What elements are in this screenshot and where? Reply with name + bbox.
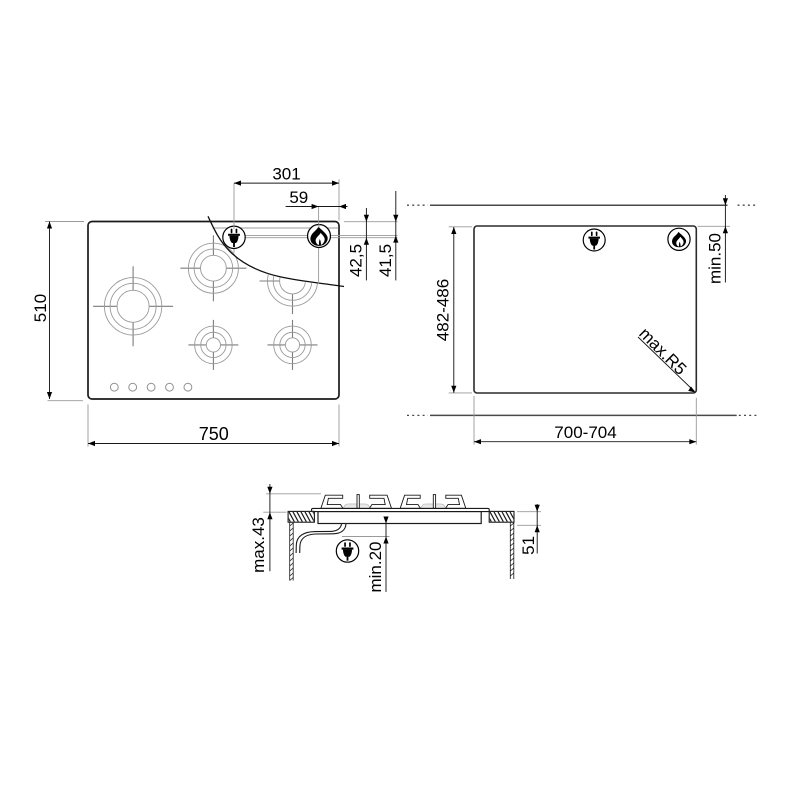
svg-text:482-486: 482-486 xyxy=(434,279,453,341)
svg-text:301: 301 xyxy=(272,165,300,184)
svg-text:max.43: max.43 xyxy=(249,517,268,573)
svg-text:510: 510 xyxy=(31,294,50,322)
svg-text:min.20: min.20 xyxy=(366,541,385,592)
svg-text:min.50: min.50 xyxy=(706,233,725,284)
svg-text:42,5: 42,5 xyxy=(347,244,366,277)
svg-text:51: 51 xyxy=(519,536,538,555)
svg-text:700-704: 700-704 xyxy=(554,423,616,442)
svg-text:41,5: 41,5 xyxy=(376,244,395,277)
svg-text:59: 59 xyxy=(289,188,308,207)
svg-text:750: 750 xyxy=(199,424,229,444)
